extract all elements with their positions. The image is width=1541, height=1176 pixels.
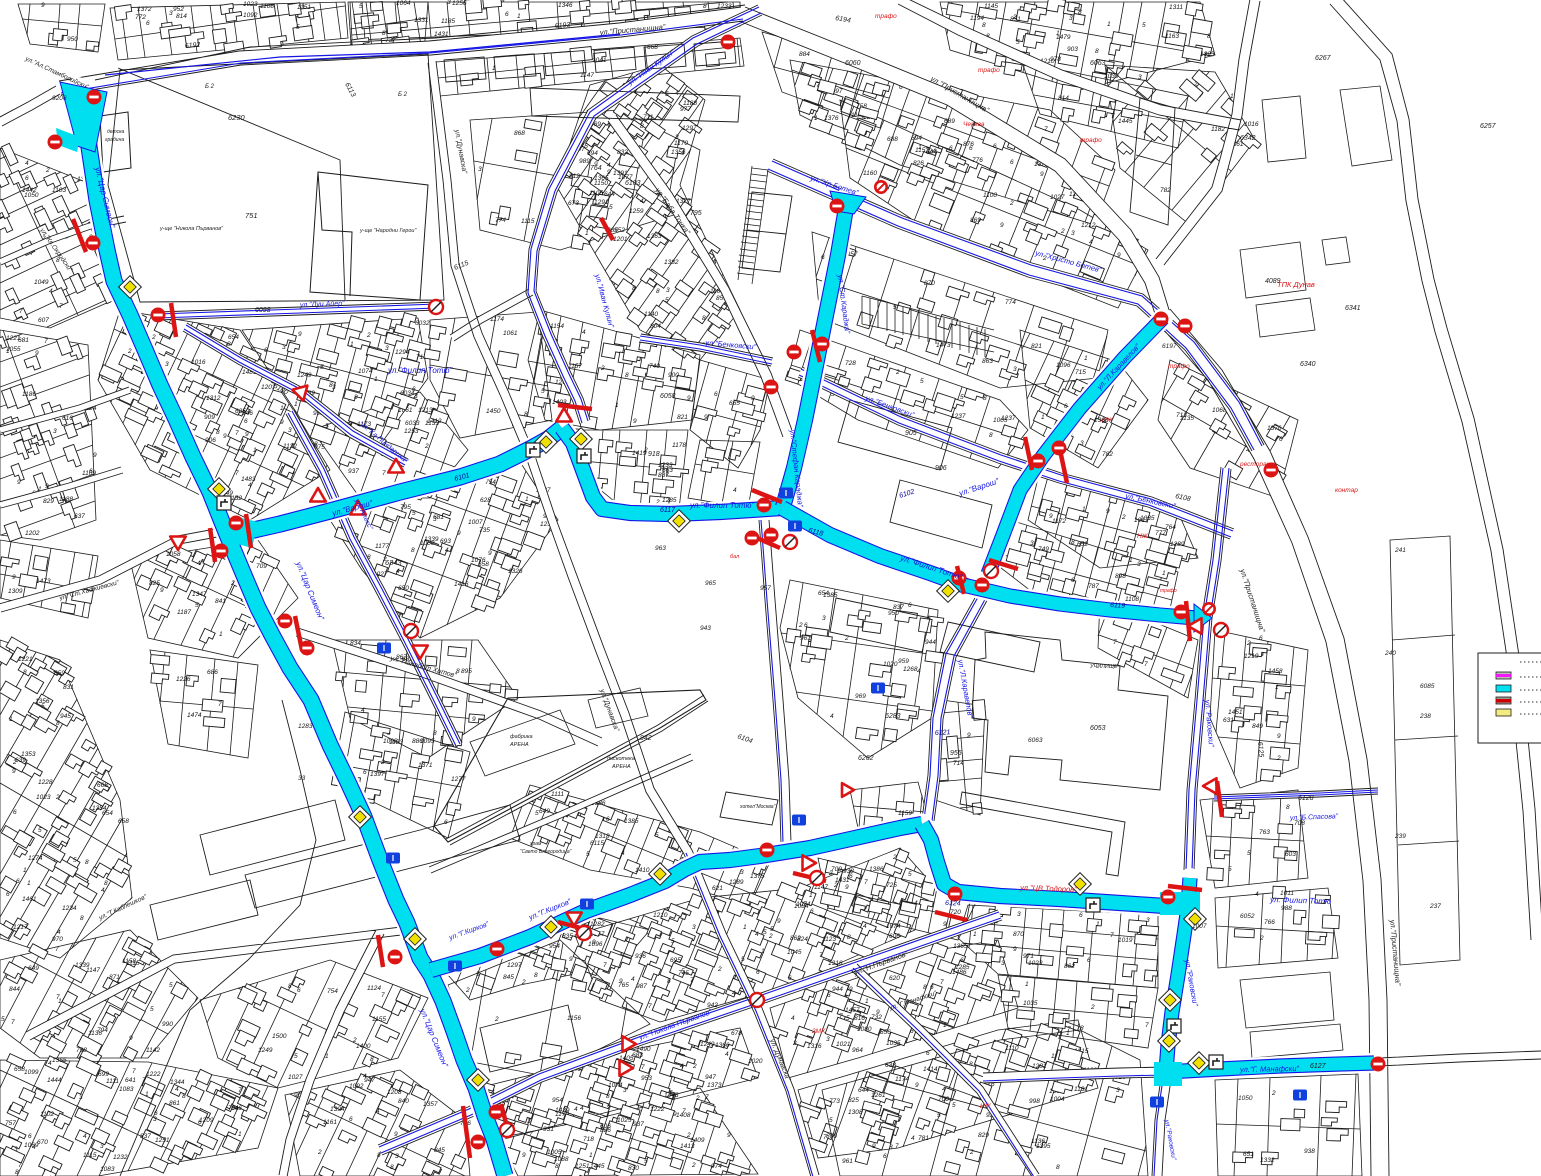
- svg-text:ТПК Дунав: ТПК Дунав: [1277, 280, 1315, 289]
- svg-text:1080: 1080: [857, 1026, 872, 1033]
- svg-text:686: 686: [207, 669, 218, 676]
- svg-text:трафо: трафо: [978, 67, 1000, 74]
- svg-text:856: 856: [880, 1029, 891, 1036]
- svg-text:9: 9: [967, 732, 971, 739]
- svg-text:821: 821: [1031, 343, 1042, 350]
- svg-text:9: 9: [472, 716, 476, 723]
- svg-text:8: 8: [15, 1169, 19, 1176]
- svg-text:869: 869: [970, 217, 981, 224]
- svg-text:4: 4: [640, 198, 644, 205]
- svg-text:1386: 1386: [869, 866, 884, 873]
- svg-text:903: 903: [1067, 46, 1078, 53]
- svg-text:6: 6: [244, 418, 248, 425]
- svg-text:1084: 1084: [794, 903, 809, 910]
- svg-text:1372: 1372: [137, 6, 152, 13]
- svg-text:1397: 1397: [370, 771, 385, 778]
- svg-text:1074: 1074: [358, 368, 373, 375]
- svg-text:9: 9: [845, 884, 849, 891]
- svg-text:1: 1: [219, 631, 223, 638]
- svg-text:6: 6: [1079, 912, 1083, 919]
- svg-text:821: 821: [677, 414, 688, 421]
- svg-text:3: 3: [822, 615, 826, 622]
- svg-text:773: 773: [829, 1098, 840, 1105]
- svg-text:3: 3: [740, 869, 744, 876]
- svg-text:6052: 6052: [1240, 913, 1255, 920]
- svg-text:3: 3: [433, 516, 437, 523]
- svg-text:814: 814: [1058, 95, 1069, 102]
- svg-text:2: 2: [1012, 14, 1017, 21]
- svg-text:1021: 1021: [836, 1041, 851, 1048]
- svg-text:641: 641: [125, 1077, 136, 1084]
- svg-text:814: 814: [176, 13, 187, 20]
- svg-text:1: 1: [814, 115, 818, 122]
- svg-text:945: 945: [60, 713, 71, 720]
- svg-text:1188: 1188: [683, 100, 697, 107]
- svg-text:6: 6: [849, 873, 853, 880]
- svg-text:2: 2: [691, 1162, 696, 1169]
- svg-text:4: 4: [363, 1073, 367, 1080]
- svg-text:7: 7: [1145, 1022, 1149, 1029]
- svg-text:6283: 6283: [885, 713, 901, 720]
- svg-text:детска: детска: [107, 129, 124, 135]
- svg-text:909: 909: [204, 414, 215, 421]
- svg-text:757: 757: [5, 1120, 16, 1127]
- svg-text:9: 9: [876, 1009, 880, 1016]
- svg-text:2: 2: [1271, 1090, 1276, 1097]
- svg-text:740: 740: [649, 363, 660, 370]
- svg-text:944: 944: [925, 639, 936, 646]
- svg-text:1251: 1251: [155, 1137, 170, 1144]
- svg-text:1: 1: [294, 401, 298, 408]
- svg-text:Б 2: Б 2: [398, 92, 408, 98]
- svg-text:6341: 6341: [1345, 305, 1361, 312]
- svg-text:I: I: [785, 489, 787, 498]
- svg-text:862: 862: [790, 935, 801, 942]
- svg-text:3: 3: [1116, 1087, 1120, 1094]
- svg-text:1: 1: [27, 880, 31, 887]
- svg-text:7: 7: [381, 992, 385, 999]
- svg-text:1: 1: [809, 892, 813, 899]
- svg-text:6: 6: [1087, 957, 1091, 964]
- svg-text:1178: 1178: [672, 442, 686, 449]
- svg-text:3: 3: [478, 166, 482, 173]
- svg-text:947: 947: [705, 1074, 716, 1081]
- svg-text:2: 2: [717, 966, 722, 973]
- svg-text:8: 8: [433, 730, 437, 737]
- svg-text:1: 1: [1025, 981, 1029, 988]
- svg-text:1140: 1140: [644, 311, 658, 318]
- svg-text:1111: 1111: [551, 791, 564, 798]
- svg-text:1083: 1083: [100, 1166, 115, 1173]
- svg-text:776: 776: [972, 157, 983, 164]
- svg-text:694: 694: [911, 135, 922, 142]
- svg-text:900: 900: [668, 372, 679, 379]
- svg-text:1123: 1123: [822, 936, 836, 943]
- svg-text:1297: 1297: [507, 962, 522, 969]
- svg-text:772: 772: [135, 14, 146, 21]
- svg-text:620: 620: [889, 975, 900, 982]
- svg-text:1249: 1249: [258, 1047, 273, 1054]
- svg-text:6: 6: [1259, 635, 1263, 642]
- svg-text:237: 237: [1429, 903, 1441, 910]
- svg-text:9: 9: [280, 419, 284, 426]
- svg-text:6: 6: [926, 1050, 930, 1057]
- svg-text:825: 825: [149, 580, 160, 587]
- svg-text:1249: 1249: [700, 1041, 715, 1048]
- svg-text:8: 8: [104, 880, 108, 887]
- svg-text:3: 3: [53, 428, 57, 435]
- svg-text:987: 987: [636, 983, 647, 990]
- svg-text:1274: 1274: [28, 855, 43, 862]
- svg-text:3: 3: [165, 361, 169, 368]
- svg-text:7: 7: [1111, 113, 1115, 120]
- svg-text:955: 955: [950, 750, 962, 757]
- svg-text:2: 2: [424, 443, 429, 450]
- svg-text:7: 7: [238, 1087, 242, 1094]
- svg-text:1170: 1170: [674, 140, 688, 147]
- svg-text:9: 9: [41, 2, 45, 9]
- svg-text:1076: 1076: [471, 557, 486, 564]
- svg-text:8: 8: [85, 859, 89, 866]
- svg-text:1105: 1105: [589, 190, 603, 197]
- svg-text:8: 8: [1078, 9, 1082, 16]
- svg-text:886: 886: [412, 738, 423, 745]
- svg-text:4: 4: [755, 931, 759, 938]
- svg-text:3: 3: [395, 1153, 399, 1160]
- svg-text:3: 3: [282, 344, 286, 351]
- svg-text:884: 884: [799, 51, 810, 58]
- svg-text:709: 709: [256, 563, 267, 570]
- svg-text:1115: 1115: [83, 1152, 97, 1159]
- svg-text:1289: 1289: [1170, 541, 1185, 548]
- svg-text:8: 8: [382, 30, 386, 37]
- svg-text:1092: 1092: [349, 1083, 364, 1090]
- svg-text:798: 798: [76, 1047, 87, 1054]
- svg-text:I: I: [1156, 1098, 1158, 1107]
- svg-text:6343: 6343: [385, 558, 403, 567]
- svg-text:6127: 6127: [1310, 1063, 1327, 1070]
- svg-text:1000: 1000: [420, 540, 435, 547]
- svg-text:9: 9: [1277, 733, 1281, 740]
- svg-text:970: 970: [52, 936, 63, 943]
- svg-text:1219: 1219: [1244, 653, 1259, 660]
- svg-text:1020: 1020: [883, 661, 898, 668]
- svg-text:9: 9: [633, 418, 637, 425]
- svg-text:777: 777: [1155, 530, 1166, 537]
- svg-text:4: 4: [197, 560, 201, 567]
- svg-text:1016: 1016: [191, 359, 206, 366]
- svg-text:4: 4: [830, 713, 834, 720]
- svg-text:6340: 6340: [1300, 361, 1316, 368]
- svg-text:5: 5: [644, 1158, 648, 1165]
- svg-text:трафо: трафо: [1160, 588, 1177, 594]
- svg-text:5: 5: [586, 851, 590, 858]
- svg-text:644: 644: [858, 1087, 869, 1094]
- svg-text:2: 2: [895, 369, 900, 376]
- svg-text:9: 9: [569, 956, 573, 963]
- svg-text:I: I: [798, 816, 800, 825]
- svg-text:2: 2: [833, 882, 838, 889]
- svg-text:7: 7: [11, 1019, 15, 1026]
- svg-text:9: 9: [245, 431, 249, 438]
- svg-text:I: I: [1299, 1091, 1301, 1100]
- svg-text:2МХ: 2МХ: [811, 1028, 826, 1035]
- svg-text:6: 6: [960, 957, 964, 964]
- svg-text:1102: 1102: [40, 1111, 54, 1118]
- svg-text:9: 9: [607, 1104, 611, 1111]
- svg-text:954: 954: [552, 1097, 563, 1104]
- svg-text:1221: 1221: [6, 335, 21, 342]
- svg-text:918: 918: [648, 451, 660, 458]
- svg-text:9: 9: [12, 768, 16, 775]
- svg-text:трафо: трафо: [1080, 137, 1102, 144]
- svg-text:АРЕНА: АРЕНА: [611, 764, 631, 770]
- svg-text:1: 1: [58, 998, 62, 1005]
- svg-text:4: 4: [863, 923, 867, 930]
- svg-text:2: 2: [55, 794, 60, 801]
- svg-text:4: 4: [57, 929, 61, 936]
- svg-text:6257: 6257: [1480, 123, 1497, 130]
- svg-text:8: 8: [390, 1164, 394, 1171]
- svg-text:1074: 1074: [608, 1082, 623, 1089]
- svg-text:3: 3: [623, 1087, 627, 1094]
- svg-text:7: 7: [529, 1131, 533, 1138]
- svg-text:1124: 1124: [367, 985, 381, 992]
- svg-text:”Свето Благородица”: ”Свето Благородица”: [520, 849, 572, 855]
- svg-text:1353: 1353: [21, 751, 36, 758]
- svg-text:1291: 1291: [594, 199, 609, 206]
- svg-text:931: 931: [543, 1126, 554, 1133]
- svg-text:950: 950: [67, 36, 78, 43]
- svg-text:1347: 1347: [192, 591, 207, 598]
- svg-text:1058: 1058: [166, 551, 181, 558]
- svg-text:1256: 1256: [452, 0, 467, 7]
- svg-text:787: 787: [1088, 583, 1099, 590]
- svg-text:9: 9: [1106, 508, 1110, 515]
- svg-text:3: 3: [1146, 917, 1150, 924]
- svg-text:5: 5: [412, 510, 416, 517]
- svg-text:9: 9: [522, 1152, 526, 1159]
- svg-text:8: 8: [216, 429, 220, 436]
- svg-text:8: 8: [1056, 1164, 1060, 1171]
- svg-text:4: 4: [942, 1086, 946, 1093]
- svg-text:9: 9: [93, 452, 97, 459]
- svg-text:5: 5: [1016, 39, 1020, 46]
- svg-text:1023: 1023: [1028, 960, 1043, 967]
- svg-text:1385: 1385: [624, 818, 639, 825]
- svg-text:3: 3: [1030, 540, 1034, 547]
- svg-text:1331: 1331: [414, 17, 429, 24]
- svg-text:1289: 1289: [729, 879, 744, 886]
- svg-text:700: 700: [938, 1096, 949, 1103]
- svg-text:1096: 1096: [1056, 362, 1071, 369]
- svg-text:6103: 6103: [625, 180, 641, 187]
- svg-text:1444: 1444: [47, 1077, 62, 1084]
- svg-text:9: 9: [223, 433, 227, 440]
- svg-text:6: 6: [883, 1153, 887, 1160]
- svg-text:782: 782: [1102, 451, 1113, 458]
- svg-text:688: 688: [887, 136, 898, 143]
- svg-text:701: 701: [228, 1105, 239, 1112]
- svg-text:1414: 1414: [923, 1066, 938, 1073]
- svg-text:I: I: [877, 684, 879, 693]
- svg-text:3: 3: [288, 427, 292, 434]
- svg-text:1023: 1023: [36, 794, 51, 801]
- svg-text:898: 898: [1115, 573, 1126, 580]
- svg-text:8: 8: [80, 915, 84, 922]
- svg-text:1088: 1088: [554, 1156, 569, 1163]
- svg-text:1283: 1283: [298, 723, 313, 730]
- svg-text:8: 8: [534, 972, 538, 979]
- svg-text:6: 6: [1071, 577, 1075, 584]
- svg-text:816: 816: [854, 1015, 865, 1022]
- svg-text:804: 804: [650, 323, 661, 330]
- svg-text:3: 3: [1080, 440, 1084, 447]
- svg-text:1228: 1228: [38, 779, 53, 786]
- svg-text:8: 8: [524, 411, 528, 418]
- svg-text:5: 5: [1, 1016, 5, 1023]
- svg-text:8: 8: [1095, 48, 1099, 55]
- svg-text:3: 3: [14, 1146, 18, 1153]
- svg-text:7: 7: [6, 754, 10, 761]
- svg-text:631: 631: [1223, 717, 1234, 724]
- svg-text:861: 861: [169, 1100, 180, 1107]
- svg-text:6267: 6267: [1315, 55, 1332, 62]
- svg-text:1346: 1346: [558, 2, 573, 9]
- svg-text:6: 6: [13, 809, 17, 816]
- svg-text:6063: 6063: [1028, 737, 1043, 744]
- svg-text:1: 1: [350, 341, 354, 348]
- svg-text:658: 658: [118, 818, 129, 825]
- svg-text:238: 238: [1419, 713, 1431, 720]
- svg-text:Б 2: Б 2: [205, 84, 215, 90]
- svg-text:1111: 1111: [106, 1078, 119, 1085]
- svg-text:668: 668: [97, 782, 108, 789]
- svg-text:7: 7: [1113, 639, 1117, 646]
- svg-text:826: 826: [913, 160, 924, 167]
- svg-text:ул.”Г. Манафски”: ул.”Г. Манафски”: [1239, 1064, 1300, 1074]
- svg-text:у-ще ”Народни Герои”: у-ще ”Народни Герои”: [359, 228, 417, 234]
- svg-text:1: 1: [1096, 921, 1100, 928]
- svg-text:1: 1: [943, 1022, 947, 1029]
- svg-text:1375: 1375: [750, 873, 765, 880]
- svg-text:2: 2: [768, 933, 773, 940]
- svg-text:1413: 1413: [680, 1143, 695, 1150]
- svg-text:845: 845: [503, 974, 514, 981]
- svg-text:1: 1: [1084, 355, 1088, 362]
- svg-text:628: 628: [480, 497, 491, 504]
- svg-text:9: 9: [501, 0, 505, 4]
- svg-text:2: 2: [695, 1095, 700, 1102]
- svg-text:2: 2: [1246, 640, 1251, 647]
- svg-text:1020: 1020: [748, 1058, 763, 1065]
- svg-text:709: 709: [831, 866, 842, 873]
- svg-text:943: 943: [700, 625, 711, 632]
- svg-text:1210: 1210: [653, 912, 668, 919]
- svg-text:хотел”Москва”: хотел”Москва”: [739, 804, 776, 810]
- svg-text:1163: 1163: [1165, 33, 1179, 40]
- svg-text:8: 8: [606, 1093, 610, 1100]
- svg-text:2: 2: [230, 580, 235, 587]
- svg-text:ресторант: ресторант: [1239, 461, 1276, 468]
- svg-text:33: 33: [298, 775, 306, 782]
- svg-text:4: 4: [1089, 239, 1093, 246]
- svg-text:1174: 1174: [895, 1076, 909, 1083]
- svg-text:938: 938: [1304, 1148, 1315, 1155]
- svg-text:8: 8: [640, 123, 644, 130]
- svg-text:1344: 1344: [170, 1079, 185, 1086]
- svg-text:1253: 1253: [404, 428, 419, 435]
- svg-text:1326: 1326: [508, 568, 523, 575]
- svg-text:1268: 1268: [903, 666, 918, 673]
- svg-text:5: 5: [908, 871, 912, 878]
- svg-text:1445: 1445: [590, 1163, 605, 1170]
- svg-text:969: 969: [855, 693, 866, 700]
- svg-text:764: 764: [590, 165, 602, 172]
- svg-text:трафо: трафо: [875, 13, 897, 20]
- svg-text:7: 7: [1144, 661, 1148, 668]
- svg-text:4: 4: [48, 1060, 52, 1067]
- svg-text:УЧИЛИЩЕ: УЧИЛИЩЕ: [1089, 664, 1118, 670]
- svg-text:906: 906: [935, 465, 947, 472]
- svg-text:3: 3: [153, 1116, 157, 1123]
- svg-text:1: 1: [973, 931, 977, 938]
- svg-text:6098: 6098: [255, 307, 271, 314]
- svg-text:1408: 1408: [676, 1112, 691, 1119]
- svg-text:795: 795: [400, 504, 411, 511]
- svg-text:1213: 1213: [418, 407, 433, 414]
- svg-text:8: 8: [354, 394, 358, 401]
- svg-text:1373: 1373: [707, 1082, 722, 1089]
- svg-text:895: 895: [461, 668, 472, 675]
- svg-text:1234: 1234: [62, 905, 77, 912]
- svg-text:7: 7: [235, 470, 239, 477]
- svg-text:6: 6: [363, 769, 367, 776]
- svg-text:841: 841: [215, 598, 226, 605]
- svg-text:1332: 1332: [1260, 1157, 1275, 1164]
- svg-text:7: 7: [235, 430, 239, 437]
- svg-text:5: 5: [1142, 22, 1146, 29]
- svg-text:1201: 1201: [613, 236, 628, 243]
- svg-text:683: 683: [632, 1052, 643, 1059]
- svg-text:831: 831: [63, 684, 74, 691]
- svg-text:974: 974: [711, 1163, 722, 1170]
- svg-text:дискотека: дискотека: [607, 756, 635, 762]
- svg-text:5: 5: [41, 703, 45, 710]
- svg-text:1365: 1365: [953, 943, 968, 950]
- svg-text:876: 876: [963, 141, 974, 148]
- svg-text:4: 4: [680, 1063, 684, 1070]
- svg-text:1: 1: [1082, 506, 1086, 513]
- svg-text:1490: 1490: [636, 1046, 651, 1053]
- svg-text:6197: 6197: [1162, 343, 1177, 350]
- svg-text:5: 5: [296, 24, 300, 31]
- svg-text:6: 6: [756, 969, 760, 976]
- svg-text:959: 959: [898, 658, 909, 665]
- svg-text:1222: 1222: [650, 1106, 665, 1113]
- svg-text:I: I: [383, 644, 385, 653]
- svg-text:6: 6: [606, 816, 610, 823]
- svg-text:965: 965: [705, 580, 716, 587]
- svg-text:8: 8: [56, 720, 60, 727]
- svg-text:4: 4: [911, 1135, 915, 1142]
- svg-text:1177: 1177: [375, 543, 389, 550]
- svg-text:2: 2: [692, 1063, 697, 1070]
- svg-text:1005: 1005: [993, 417, 1008, 424]
- svg-text:1: 1: [238, 1131, 242, 1138]
- svg-text:1394: 1394: [330, 1106, 345, 1113]
- svg-text:906: 906: [205, 437, 216, 444]
